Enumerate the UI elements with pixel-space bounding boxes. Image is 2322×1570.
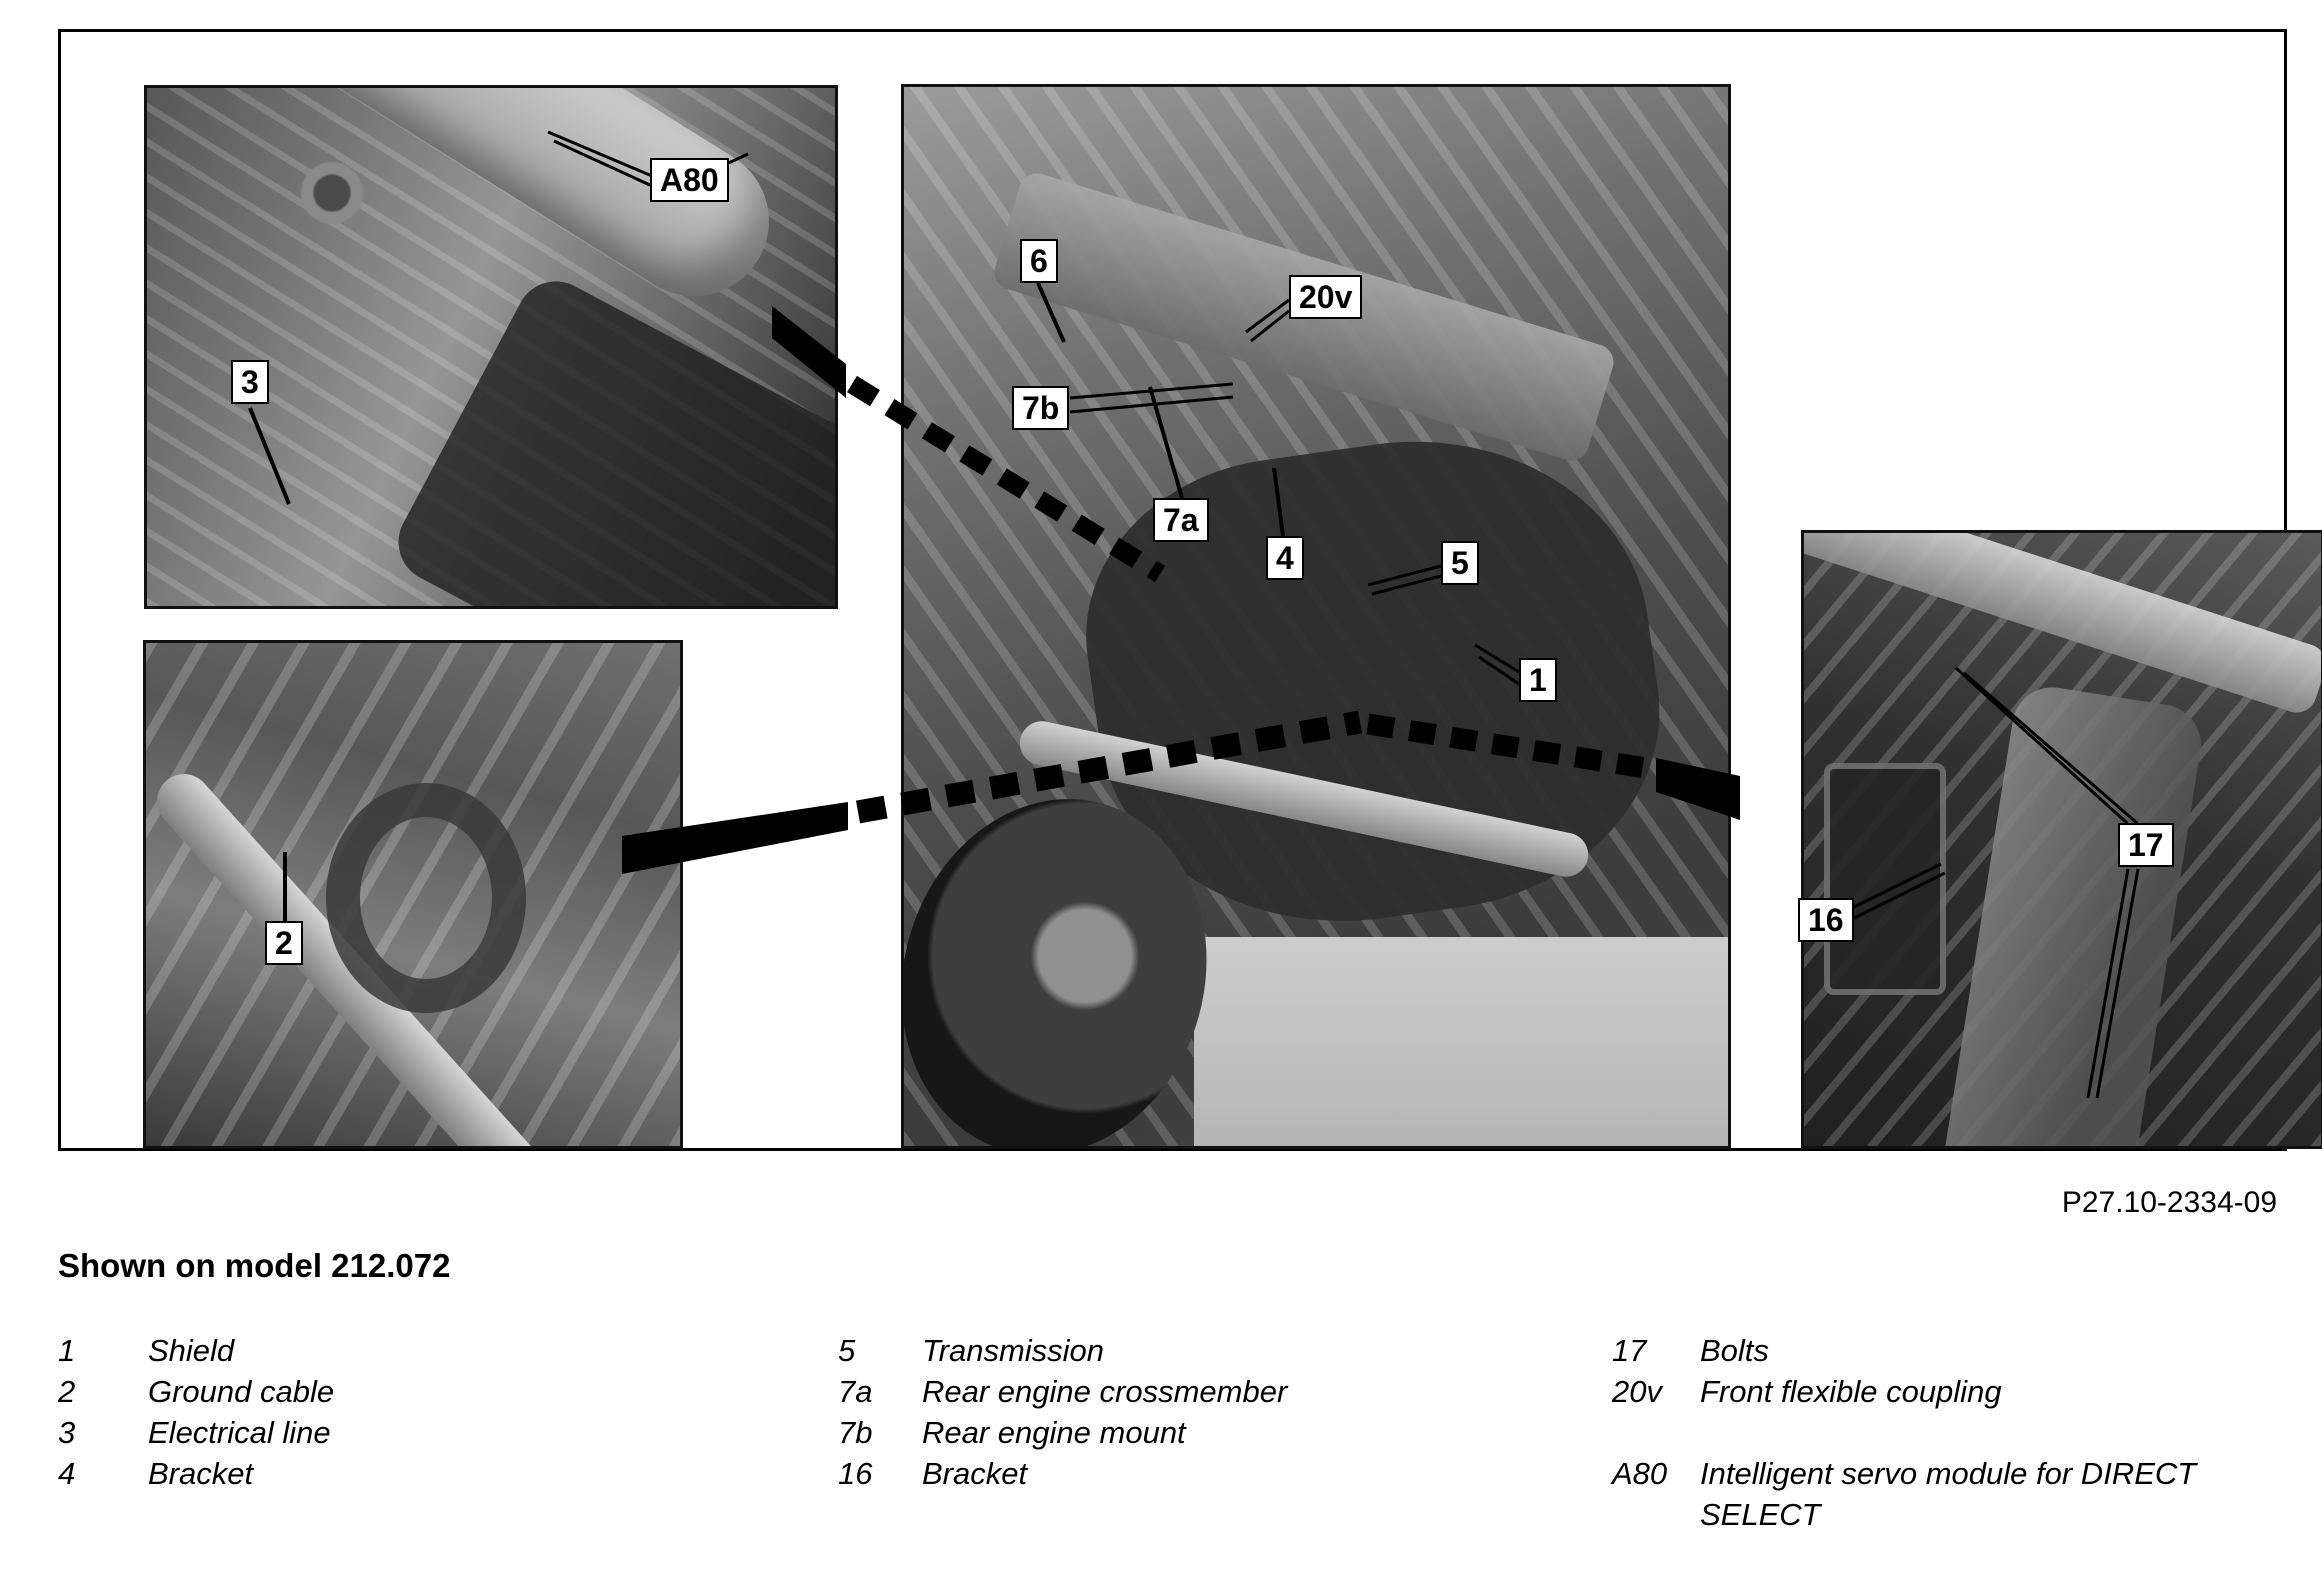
legend-key: 16 (838, 1453, 872, 1494)
photo-inset-top-left (144, 85, 838, 609)
legend-key: 20v (1612, 1371, 1662, 1412)
callout-17: 17 (2118, 823, 2174, 867)
callout-7a: 7a (1153, 498, 1209, 542)
legend-key: 7a (838, 1371, 872, 1412)
callout-3: 3 (231, 360, 269, 404)
bolt-hole-shape (297, 158, 367, 228)
callout-5: 5 (1441, 541, 1479, 585)
floor-shape (1194, 937, 1728, 1146)
callout-20v: 20v (1289, 275, 1362, 319)
legend-key: 7b (838, 1412, 872, 1453)
legend-label: Shield (148, 1330, 234, 1371)
photo-inset-right (1801, 530, 2322, 1149)
legend-label: Transmission (922, 1330, 1104, 1371)
legend-label: Bracket (922, 1453, 1027, 1494)
clamp-ring-shape (326, 783, 526, 1013)
legend-label: Ground cable (148, 1371, 334, 1412)
callout-2: 2 (265, 921, 303, 965)
figure-frame (58, 29, 2287, 1151)
callout-a80: A80 (650, 158, 729, 202)
legend-label: Electrical line (148, 1412, 331, 1453)
figure-code: P27.10-2334-09 (2062, 1186, 2277, 1220)
photo-inset-bottom-left (143, 640, 683, 1149)
callout-4: 4 (1266, 536, 1304, 580)
legend-label: Bracket (148, 1453, 253, 1494)
legend-label: Intelligent servo module for DIRECT SELE… (1700, 1453, 2255, 1535)
callout-1: 1 (1519, 658, 1557, 702)
figure-caption: Shown on model 212.072 (58, 1247, 450, 1285)
legend-key: 2 (58, 1371, 75, 1412)
legend-key: 4 (58, 1453, 75, 1494)
legend-label: Rear engine crossmember (922, 1371, 1287, 1412)
legend-key: 1 (58, 1330, 75, 1371)
legend-key: 3 (58, 1412, 75, 1453)
legend-key: 5 (838, 1330, 855, 1371)
legend-key: 17 (1612, 1330, 1646, 1371)
callout-16: 16 (1798, 898, 1854, 942)
callout-7b: 7b (1012, 386, 1069, 430)
legend-label: Bolts (1700, 1330, 1769, 1371)
callout-6: 6 (1020, 239, 1058, 283)
connector-shape (1824, 763, 1946, 995)
manual-figure-page: A80 3 2 6 20v 7b 7a 4 5 1 16 17 P27.10-2… (0, 0, 2322, 1570)
legend-key: A80 (1612, 1453, 1667, 1494)
legend-label: Rear engine mount (922, 1412, 1186, 1453)
legend-label: Front flexible coupling (1700, 1371, 2002, 1412)
